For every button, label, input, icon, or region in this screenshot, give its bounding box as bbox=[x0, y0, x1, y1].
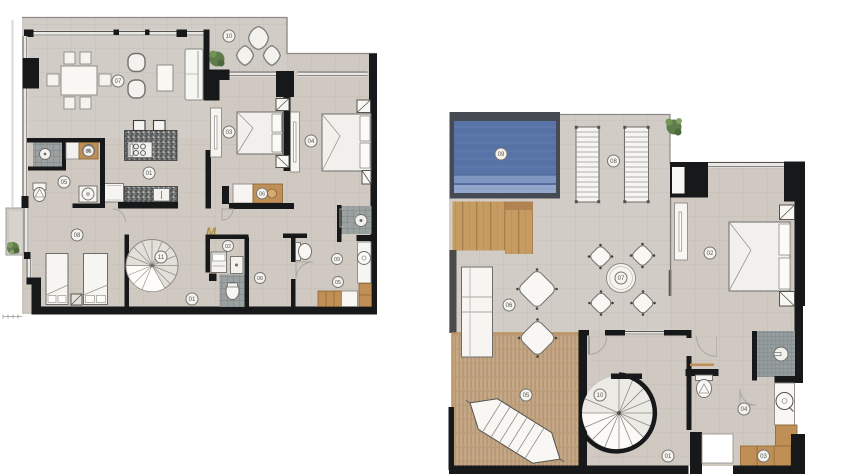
svg-text:06: 06 bbox=[85, 149, 91, 155]
svg-text:05: 05 bbox=[523, 393, 530, 399]
svg-text:07: 07 bbox=[618, 276, 625, 282]
svg-text:11: 11 bbox=[158, 255, 165, 261]
svg-text:08: 08 bbox=[610, 159, 617, 165]
svg-text:09: 09 bbox=[334, 257, 340, 263]
svg-text:01: 01 bbox=[146, 171, 153, 177]
svg-text:06: 06 bbox=[257, 276, 263, 282]
svg-text:03: 03 bbox=[760, 454, 767, 460]
svg-text:06: 06 bbox=[506, 303, 513, 309]
svg-text:02: 02 bbox=[707, 251, 714, 257]
svg-text:04: 04 bbox=[308, 139, 315, 145]
svg-text:05: 05 bbox=[61, 180, 68, 186]
svg-text:08: 08 bbox=[74, 233, 81, 239]
svg-text:03: 03 bbox=[226, 130, 233, 136]
svg-text:10: 10 bbox=[226, 34, 233, 40]
svg-text:05: 05 bbox=[335, 280, 341, 286]
svg-text:02: 02 bbox=[225, 244, 231, 250]
svg-text:09: 09 bbox=[498, 152, 505, 158]
svg-text:04: 04 bbox=[741, 407, 748, 413]
svg-text:07: 07 bbox=[115, 79, 122, 85]
svg-text:01: 01 bbox=[665, 454, 672, 460]
svg-text:10: 10 bbox=[597, 393, 604, 399]
svg-text:06: 06 bbox=[259, 192, 265, 198]
svg-text:01: 01 bbox=[189, 297, 196, 303]
